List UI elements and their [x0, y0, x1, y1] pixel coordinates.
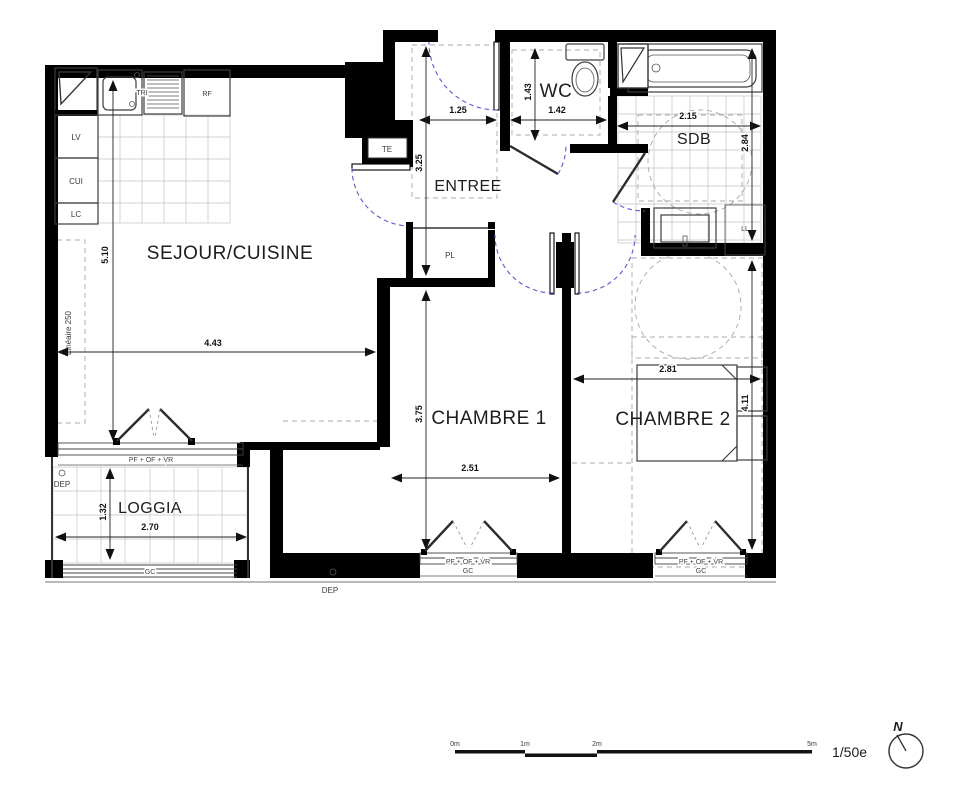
kitchen-tiles: [98, 115, 230, 223]
dim-wc-width: 1.42: [548, 105, 566, 115]
washing-machine-label: LL: [741, 226, 749, 233]
chambre2-guard-label: GC: [696, 568, 707, 575]
dim-entree-height: 3.25: [414, 154, 424, 172]
north-label: N: [893, 719, 903, 734]
loggia-label: LOGGIA: [118, 500, 182, 517]
dim-chambre1-height: 3.75: [414, 405, 424, 423]
pl-closet: PL: [406, 222, 495, 260]
scale-tick-0: 0m: [450, 741, 460, 748]
chambre2-window-label: PF + OF + VR: [679, 559, 723, 566]
lc-label: LC: [71, 210, 81, 219]
chambre1-window-label: PF + OF + VR: [446, 559, 490, 566]
svg-text:DEP: DEP: [54, 480, 70, 489]
dep-marker-loggia: DEP: [54, 470, 70, 489]
wc-door: [510, 146, 566, 174]
pl-label: PL: [445, 251, 455, 260]
sejour-window-label: PF + OF + VR: [129, 457, 173, 464]
loggia-guard-label: GC: [145, 569, 156, 576]
entrance-door: [429, 42, 499, 110]
sejour-window: PF + OF + VR: [58, 409, 243, 465]
cooker-label: CUI: [69, 177, 83, 186]
compass-needle: [897, 735, 906, 751]
fridge-label: RF: [202, 91, 211, 98]
sejour-door: [352, 164, 410, 226]
dim-loggia-width: 2.70: [141, 522, 159, 532]
lc-box: LC: [55, 203, 98, 224]
entree-zone: [412, 45, 497, 198]
sejour-label: SEJOUR/CUISINE: [147, 243, 313, 264]
dim-loggia-height: 1.32: [98, 503, 108, 521]
dim-sejour-height: 5.10: [100, 246, 110, 264]
chambre2-turning-circle: [635, 253, 741, 359]
scale-ratio-label: 1/50e: [832, 744, 867, 760]
north-compass: N: [889, 719, 923, 768]
svg-text:DEP: DEP: [322, 586, 338, 595]
chambre1-door: [495, 233, 554, 294]
kitchen-linear-label: Linéaire 250: [64, 310, 73, 355]
chambre1-guard-label: GC: [463, 568, 474, 575]
dim-entree-width: 1.25: [449, 105, 467, 115]
chambre1-window: PF + OF + VR GC: [420, 521, 517, 576]
floor-plan-drawing: PF + OF + VR PF + OF + VR GC PF + OF + V…: [0, 0, 955, 800]
dim-sdb-width: 2.15: [679, 111, 697, 121]
cooker-box: CUI: [55, 158, 98, 203]
scale-tick-1: 1m: [520, 741, 530, 748]
chambre2-window: PF + OF + VR GC: [655, 521, 747, 576]
dim-sejour-width: 4.43: [204, 338, 222, 348]
kitchen-vent-unit: [144, 72, 182, 114]
dishwasher-box: LV: [55, 115, 98, 158]
dim-wc-height: 1.43: [523, 83, 533, 101]
chambre2-lower-zone: [632, 337, 762, 567]
te-label: TE: [382, 145, 392, 154]
scale-tick-2: 2m: [592, 741, 602, 748]
floor-plan-page: PF + OF + VR PF + OF + VR GC PF + OF + V…: [0, 0, 955, 800]
scale-bar: 0m 1m 2m 5m 1/50e: [450, 741, 867, 760]
dim-chambre1-width: 2.51: [461, 463, 479, 473]
dim-chambre2-width: 2.81: [659, 364, 677, 374]
scale-tick-5: 5m: [807, 741, 817, 748]
tri-label: TRI: [136, 90, 147, 97]
walls: [45, 30, 776, 578]
sdb-label: SDB: [677, 131, 711, 148]
dim-sdb-height: 2.84: [740, 134, 750, 152]
wc-label: WC: [540, 81, 573, 102]
dim-chambre2-height: 4.11: [740, 394, 750, 411]
chambre2-upper-zone: [632, 258, 762, 358]
te-closet: TE: [368, 138, 407, 158]
chambre1-label: CHAMBRE 1: [431, 408, 546, 429]
dishwasher-label: LV: [71, 133, 81, 142]
chambre2-door: [575, 233, 635, 294]
chambre2-label: CHAMBRE 2: [615, 409, 730, 430]
entree-label: ENTREE: [434, 178, 501, 195]
sdb-duct: [618, 44, 648, 88]
